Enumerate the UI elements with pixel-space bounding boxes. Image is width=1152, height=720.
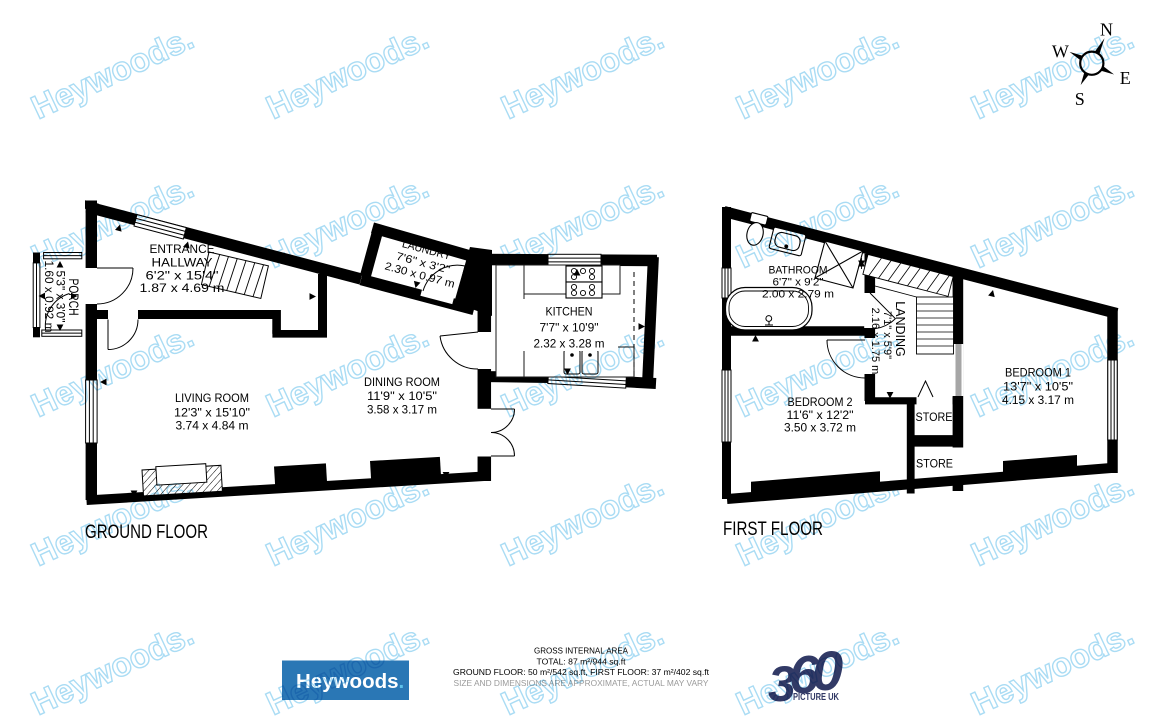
svg-text:Heywoods.: Heywoods.: [495, 466, 669, 573]
svg-text:Heywoods.: Heywoods.: [965, 615, 1139, 720]
svg-text:E: E: [1120, 68, 1131, 88]
svg-text:ENTRANCE: ENTRANCE: [150, 244, 215, 256]
svg-text:LIVING ROOM: LIVING ROOM: [175, 391, 249, 405]
svg-text:Heywoods.: Heywoods.: [25, 615, 199, 720]
svg-text:11'9" x 10'5": 11'9" x 10'5": [367, 389, 437, 403]
svg-text:S: S: [1075, 89, 1085, 109]
svg-text:6'7" x 9'2": 6'7" x 9'2": [773, 277, 824, 289]
svg-text:Heywoods.: Heywoods.: [730, 19, 904, 126]
svg-text:Heywoods.: Heywoods.: [260, 19, 434, 126]
svg-text:1.87 x 4.69 m: 1.87 x 4.69 m: [140, 283, 225, 295]
svg-text:12'3" x 15'10": 12'3" x 15'10": [174, 406, 250, 420]
svg-text:BATHROOM: BATHROOM: [769, 265, 828, 277]
svg-text:Heywoods.: Heywoods.: [965, 168, 1139, 275]
svg-text:Heywoods.: Heywoods.: [25, 19, 199, 126]
svg-text:HALLWAY: HALLWAY: [152, 258, 213, 270]
svg-text:Heywoods.: Heywoods.: [495, 19, 669, 126]
svg-text:STORE: STORE: [916, 457, 953, 471]
svg-text:2.00 x 2.79 m: 2.00 x 2.79 m: [762, 289, 834, 301]
svg-text:6'2" x 15'4": 6'2" x 15'4": [146, 271, 219, 283]
svg-text:STORE: STORE: [916, 410, 953, 424]
svg-text:7'7" x 10'9": 7'7" x 10'9": [540, 321, 599, 335]
svg-text:3.74 x 4.84 m: 3.74 x 4.84 m: [176, 419, 249, 433]
svg-text:3.50 x 3.72 m: 3.50 x 3.72 m: [784, 421, 856, 435]
svg-text:3.58 x 3.17 m: 3.58 x 3.17 m: [367, 403, 437, 417]
svg-text:PORCH: PORCH: [66, 279, 82, 316]
svg-text:5'3" x 3'0": 5'3" x 3'0": [54, 271, 66, 323]
svg-text:Heywoods.: Heywoods.: [965, 19, 1139, 126]
svg-text:KITCHEN: KITCHEN: [546, 305, 593, 319]
svg-text:Heywoods.: Heywoods.: [25, 466, 199, 573]
